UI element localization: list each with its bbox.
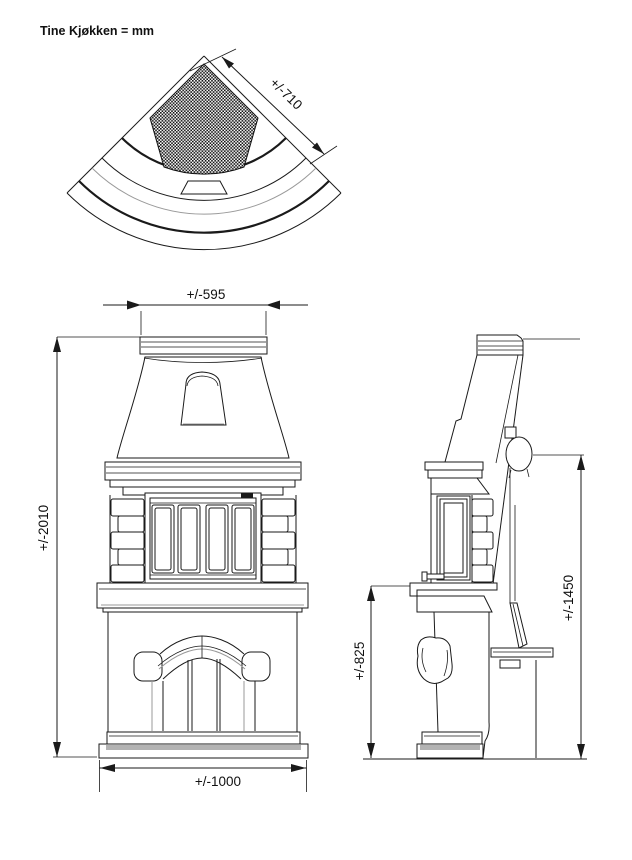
quoin-block xyxy=(118,516,144,532)
quoin-block xyxy=(262,565,295,582)
dimension-arrow xyxy=(53,337,61,352)
side-mantel xyxy=(425,462,489,494)
right-column xyxy=(261,495,296,583)
dim-top-width: +/-595 xyxy=(103,287,308,335)
hearth-shelf xyxy=(97,583,308,612)
front-hood xyxy=(117,357,289,458)
quoin-block xyxy=(262,499,295,516)
base-step-upper xyxy=(422,732,482,744)
cap-band xyxy=(140,337,267,354)
hearth-sub-band xyxy=(417,596,492,612)
mantel-band xyxy=(105,462,301,480)
side-door-glass xyxy=(444,503,463,573)
dimension-arrow xyxy=(291,764,306,772)
quoin-block xyxy=(262,516,288,532)
quoin-block xyxy=(472,499,493,516)
dimension-arrow xyxy=(127,301,141,310)
quoin-block xyxy=(262,532,295,549)
arch-volute-left xyxy=(134,652,162,681)
dim-base-width: +/-1000 xyxy=(100,760,307,792)
dimension-arrow xyxy=(367,743,375,758)
dimension-arrow xyxy=(100,764,115,772)
base-plinth xyxy=(99,732,308,758)
quoin-block xyxy=(111,565,144,582)
mantel-band xyxy=(110,480,295,487)
door-panel-glass xyxy=(209,508,225,570)
side-base xyxy=(417,732,483,758)
pedestal-rear-foot xyxy=(483,612,489,758)
mantel-shelf xyxy=(105,462,301,495)
side-cap xyxy=(477,335,523,355)
hood-vent xyxy=(181,372,226,425)
flue-tick xyxy=(527,469,529,477)
flue-outlet xyxy=(505,427,532,478)
base-step-upper xyxy=(107,732,300,744)
dimension-arrow xyxy=(266,301,280,310)
rear-flue-pipe xyxy=(510,603,527,648)
dim-bench-height: +/-825 xyxy=(352,586,410,758)
arch-under-curve xyxy=(163,658,241,679)
side-quoins xyxy=(472,495,493,583)
side-cap-band xyxy=(477,335,523,355)
hood-front-edge xyxy=(445,355,477,462)
side-hearth xyxy=(410,583,497,612)
rear-shelf-box xyxy=(500,660,520,668)
quoin-block xyxy=(472,532,493,549)
side-view: +/-825 +/-1450 xyxy=(352,335,587,759)
front-cap xyxy=(140,337,267,354)
quoin-block xyxy=(111,499,144,516)
quoin-block xyxy=(472,565,493,582)
dim-flue-outlet-height: +/-1450 xyxy=(533,455,585,759)
plan-hood-vent xyxy=(181,181,227,194)
door-latch xyxy=(241,493,253,498)
dimension-arrow xyxy=(367,586,375,601)
left-column xyxy=(110,495,145,583)
folding-glass-doors xyxy=(145,493,261,583)
dim-base-width-label: +/-1000 xyxy=(195,774,241,789)
quoin-block xyxy=(262,549,288,565)
extension-line xyxy=(310,146,337,164)
dim-bench-height-label: +/-825 xyxy=(352,642,367,681)
quoin-block xyxy=(118,549,144,565)
rear-shelf xyxy=(491,648,553,758)
dim-depth-label: +/-710 xyxy=(267,75,305,113)
mantel-corbel xyxy=(431,478,489,494)
arc-outer xyxy=(67,193,341,250)
door-panel-glass xyxy=(155,508,171,570)
mantel-band xyxy=(428,470,482,478)
quoin-block xyxy=(111,532,144,549)
rear-shelf-top xyxy=(491,648,553,657)
dim-top-width-label: +/-595 xyxy=(187,287,226,302)
drawing-page: Tine Kjøkken = mm xyxy=(0,0,632,860)
dimension-arrow xyxy=(577,455,585,470)
base-shadow xyxy=(420,745,480,750)
dim-flue-outlet-height-label: +/-1450 xyxy=(561,575,576,621)
dim-total-height-label: +/-2010 xyxy=(36,505,51,551)
door-handle-knob xyxy=(422,572,427,581)
hearth-band xyxy=(103,608,302,612)
quoin-block xyxy=(472,516,487,532)
technical-drawing-canvas: +/-710 +/-595 xyxy=(0,0,632,860)
dimension-arrow xyxy=(577,744,585,759)
top-view-plan: +/-710 xyxy=(67,49,341,250)
door-panel-glass xyxy=(181,508,197,570)
base-shadow xyxy=(106,745,301,750)
pedestal-legs xyxy=(152,659,255,731)
arch-decoration xyxy=(134,636,270,681)
door-panel-glass xyxy=(235,508,251,570)
arch-volute-right xyxy=(242,652,270,681)
flue-outlet-circle xyxy=(506,437,532,471)
hearth-top xyxy=(410,583,497,596)
flue-damper-box xyxy=(505,427,516,438)
front-view: +/-595 xyxy=(36,287,308,792)
pedestal xyxy=(108,612,297,732)
dimension-arrow xyxy=(53,742,61,757)
hearth-band xyxy=(97,583,308,608)
mantel-band xyxy=(425,462,483,470)
wall-corner-hatch xyxy=(150,64,258,174)
quoin-block xyxy=(472,549,487,565)
